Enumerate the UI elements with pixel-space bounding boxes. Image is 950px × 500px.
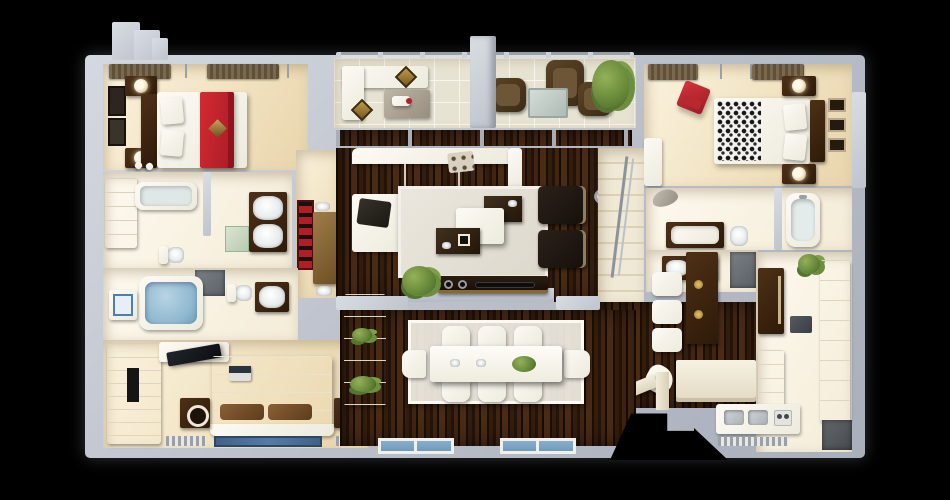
dining-chair [514, 326, 542, 348]
bathtub [135, 182, 197, 210]
bedroom1-curtain-right [207, 64, 279, 79]
toilet-bowl [168, 247, 184, 263]
table-lamp [792, 167, 806, 181]
double-vanity [249, 192, 287, 252]
tub-interior [140, 186, 192, 206]
vanity [255, 282, 289, 312]
breakfast-bar [686, 252, 718, 344]
window-mullion [414, 438, 417, 454]
dining-chair [442, 326, 470, 348]
bath-mat-blue [109, 290, 137, 320]
picture-frame [828, 138, 846, 152]
dining-chair [514, 380, 542, 402]
damask-throw [717, 101, 761, 161]
toilet-bowl [236, 285, 252, 301]
closet [644, 138, 662, 186]
kitchen-plant [798, 254, 820, 274]
nightstand [782, 76, 816, 96]
pillow [783, 133, 808, 161]
utility-mat [822, 420, 852, 450]
shower-mat-gray [730, 252, 756, 288]
bar-stool [652, 272, 682, 296]
dining-chair [478, 326, 506, 348]
picture-frame [828, 98, 846, 112]
room-master-bedroom [103, 340, 368, 448]
dining-chair-end [402, 350, 426, 378]
fridge-handle [778, 276, 781, 324]
balcony-plant [592, 60, 630, 110]
dining-chair [478, 380, 506, 402]
wardrobe [107, 344, 161, 444]
floor-plan-canvas [0, 0, 950, 500]
bar-stool [652, 300, 682, 324]
kitchen-runner-mat [718, 437, 788, 446]
chair-cushion [496, 84, 520, 106]
dining-chair [442, 380, 470, 402]
table-lamp [134, 79, 148, 93]
room-hall-nook [296, 150, 338, 298]
interior-wall [774, 188, 782, 250]
soundbar [476, 283, 534, 287]
media-console [438, 276, 548, 293]
balcony-pillar [470, 36, 496, 128]
toilet [227, 284, 253, 302]
sink [253, 196, 283, 220]
room-bathroom-upper [103, 172, 292, 268]
kitchen-cabinets-left [758, 350, 784, 408]
room-bedroom-2 [644, 64, 852, 186]
speaker-knob [444, 280, 453, 289]
fridge [758, 268, 784, 334]
soaking-tub [139, 276, 203, 330]
pillow-brown [220, 404, 264, 420]
burner [784, 414, 789, 419]
pillow [160, 129, 184, 157]
pendant-lamp [650, 186, 680, 209]
centerpiece [512, 356, 536, 372]
bedroom2-curtain-left [648, 64, 698, 80]
burner [777, 414, 782, 419]
pillow-patterned [447, 151, 475, 174]
kitchen-cabinets-right [820, 260, 850, 422]
toilet-bowl [730, 226, 748, 246]
wall-art-1 [108, 86, 126, 116]
room-stair-hall [598, 148, 644, 302]
headboard [210, 424, 334, 436]
bath-mat-green [225, 226, 249, 252]
flower-decor [694, 310, 703, 319]
low-table [384, 90, 430, 118]
mat-inner [113, 294, 133, 316]
place-setting [476, 359, 486, 367]
steel-sink [724, 410, 744, 425]
nightstand [782, 164, 816, 184]
pillow-brown [268, 404, 312, 420]
decor-vase [316, 286, 332, 296]
red-chair [676, 80, 711, 115]
decor-frame [458, 234, 470, 246]
sink [253, 224, 283, 248]
place-setting [450, 359, 460, 367]
table-lamp [792, 79, 806, 93]
toilet-tank [159, 246, 168, 264]
sideboard-plant [350, 376, 376, 392]
tub-interior [791, 199, 815, 241]
pillow [160, 97, 184, 125]
red-artwork [297, 200, 314, 270]
window-blue [378, 438, 454, 454]
right-wall-bump [852, 92, 866, 188]
striped-mat [166, 436, 206, 446]
pillow [783, 103, 808, 131]
entry-desk [676, 360, 756, 398]
armchair [538, 230, 586, 268]
coffee-table-dark [436, 228, 480, 254]
interior-wall [203, 172, 211, 236]
flower-decor [694, 280, 703, 289]
chair-seat [681, 94, 702, 109]
armchair [538, 186, 586, 224]
decor-vase [315, 202, 330, 211]
window-blue [500, 438, 576, 454]
bar-stool [652, 328, 682, 352]
interior-wall [336, 296, 408, 310]
tub-surround [666, 222, 724, 248]
tub-water [145, 282, 197, 324]
room-living [336, 130, 632, 302]
toilet [159, 246, 185, 264]
plant [402, 266, 436, 296]
room-bedroom-1 [103, 64, 308, 170]
headboard [141, 94, 157, 166]
headboard [810, 100, 825, 162]
laptop-screen [229, 366, 251, 373]
sofa-back [352, 148, 514, 164]
pillow-dark [356, 198, 391, 228]
stove [774, 410, 792, 426]
closet-shelving [105, 178, 137, 248]
sink-counter [716, 404, 800, 434]
master-bed [212, 356, 332, 428]
picture-frame [828, 118, 846, 132]
toilet-tank [227, 284, 236, 302]
sliding-glass-wall [336, 130, 632, 148]
room-bathroom-right [646, 188, 852, 250]
dining-chair-end [564, 350, 590, 378]
window-mullion [536, 438, 539, 454]
tray-bowl [442, 242, 451, 249]
faucet [799, 195, 807, 199]
wall-art-2 [108, 118, 126, 146]
speaker-knob [458, 280, 467, 289]
interior-wall [556, 296, 600, 310]
steel-sink [748, 410, 768, 425]
room-bathroom-lower [103, 268, 298, 340]
wood-console [313, 212, 337, 284]
glass-table [528, 88, 568, 118]
magazine-dot [406, 98, 412, 104]
laptop [229, 366, 251, 381]
entry-wall-stub [656, 372, 669, 410]
soaker-tub [786, 193, 820, 247]
chimney-step-3 [152, 38, 168, 60]
speaker-ring [187, 405, 209, 427]
rug-blue [214, 436, 322, 447]
dining-table [430, 346, 562, 382]
nightstand [125, 76, 157, 96]
speaker-nightstand [180, 398, 210, 428]
wardrobe-tv-inset [127, 368, 139, 402]
microwave [790, 316, 812, 333]
tray-bowl [508, 200, 517, 207]
bathtub [671, 226, 719, 244]
sideboard-plant [352, 328, 372, 342]
sink [259, 286, 285, 308]
